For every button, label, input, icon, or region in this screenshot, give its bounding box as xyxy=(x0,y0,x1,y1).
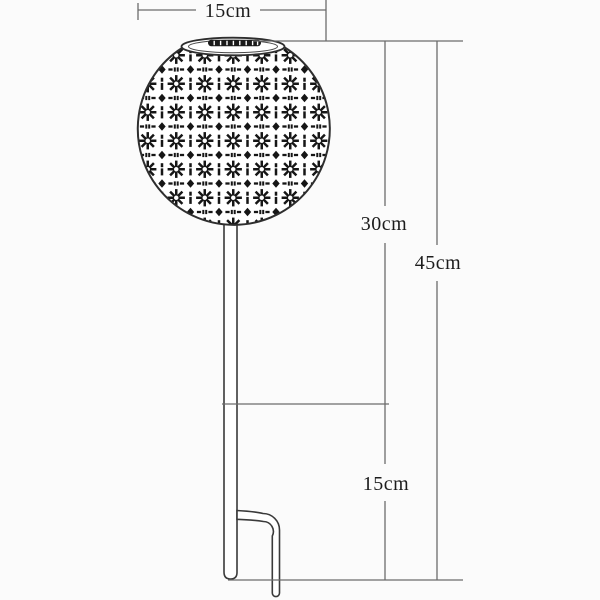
stake-pole xyxy=(224,210,237,579)
dimension-label-stake-depth: 15cm xyxy=(354,473,418,495)
ground-prong xyxy=(237,511,280,597)
dimension-label-upper-height: 30cm xyxy=(352,213,416,235)
globe-body xyxy=(138,47,330,225)
dimension-label-total-height: 45cm xyxy=(406,252,470,274)
dimension-diagram: 15cm 30cm 45cm 15cm xyxy=(0,0,600,600)
dimension-label-globe-width: 15cm xyxy=(196,0,260,22)
lamp-illustration xyxy=(0,0,600,600)
